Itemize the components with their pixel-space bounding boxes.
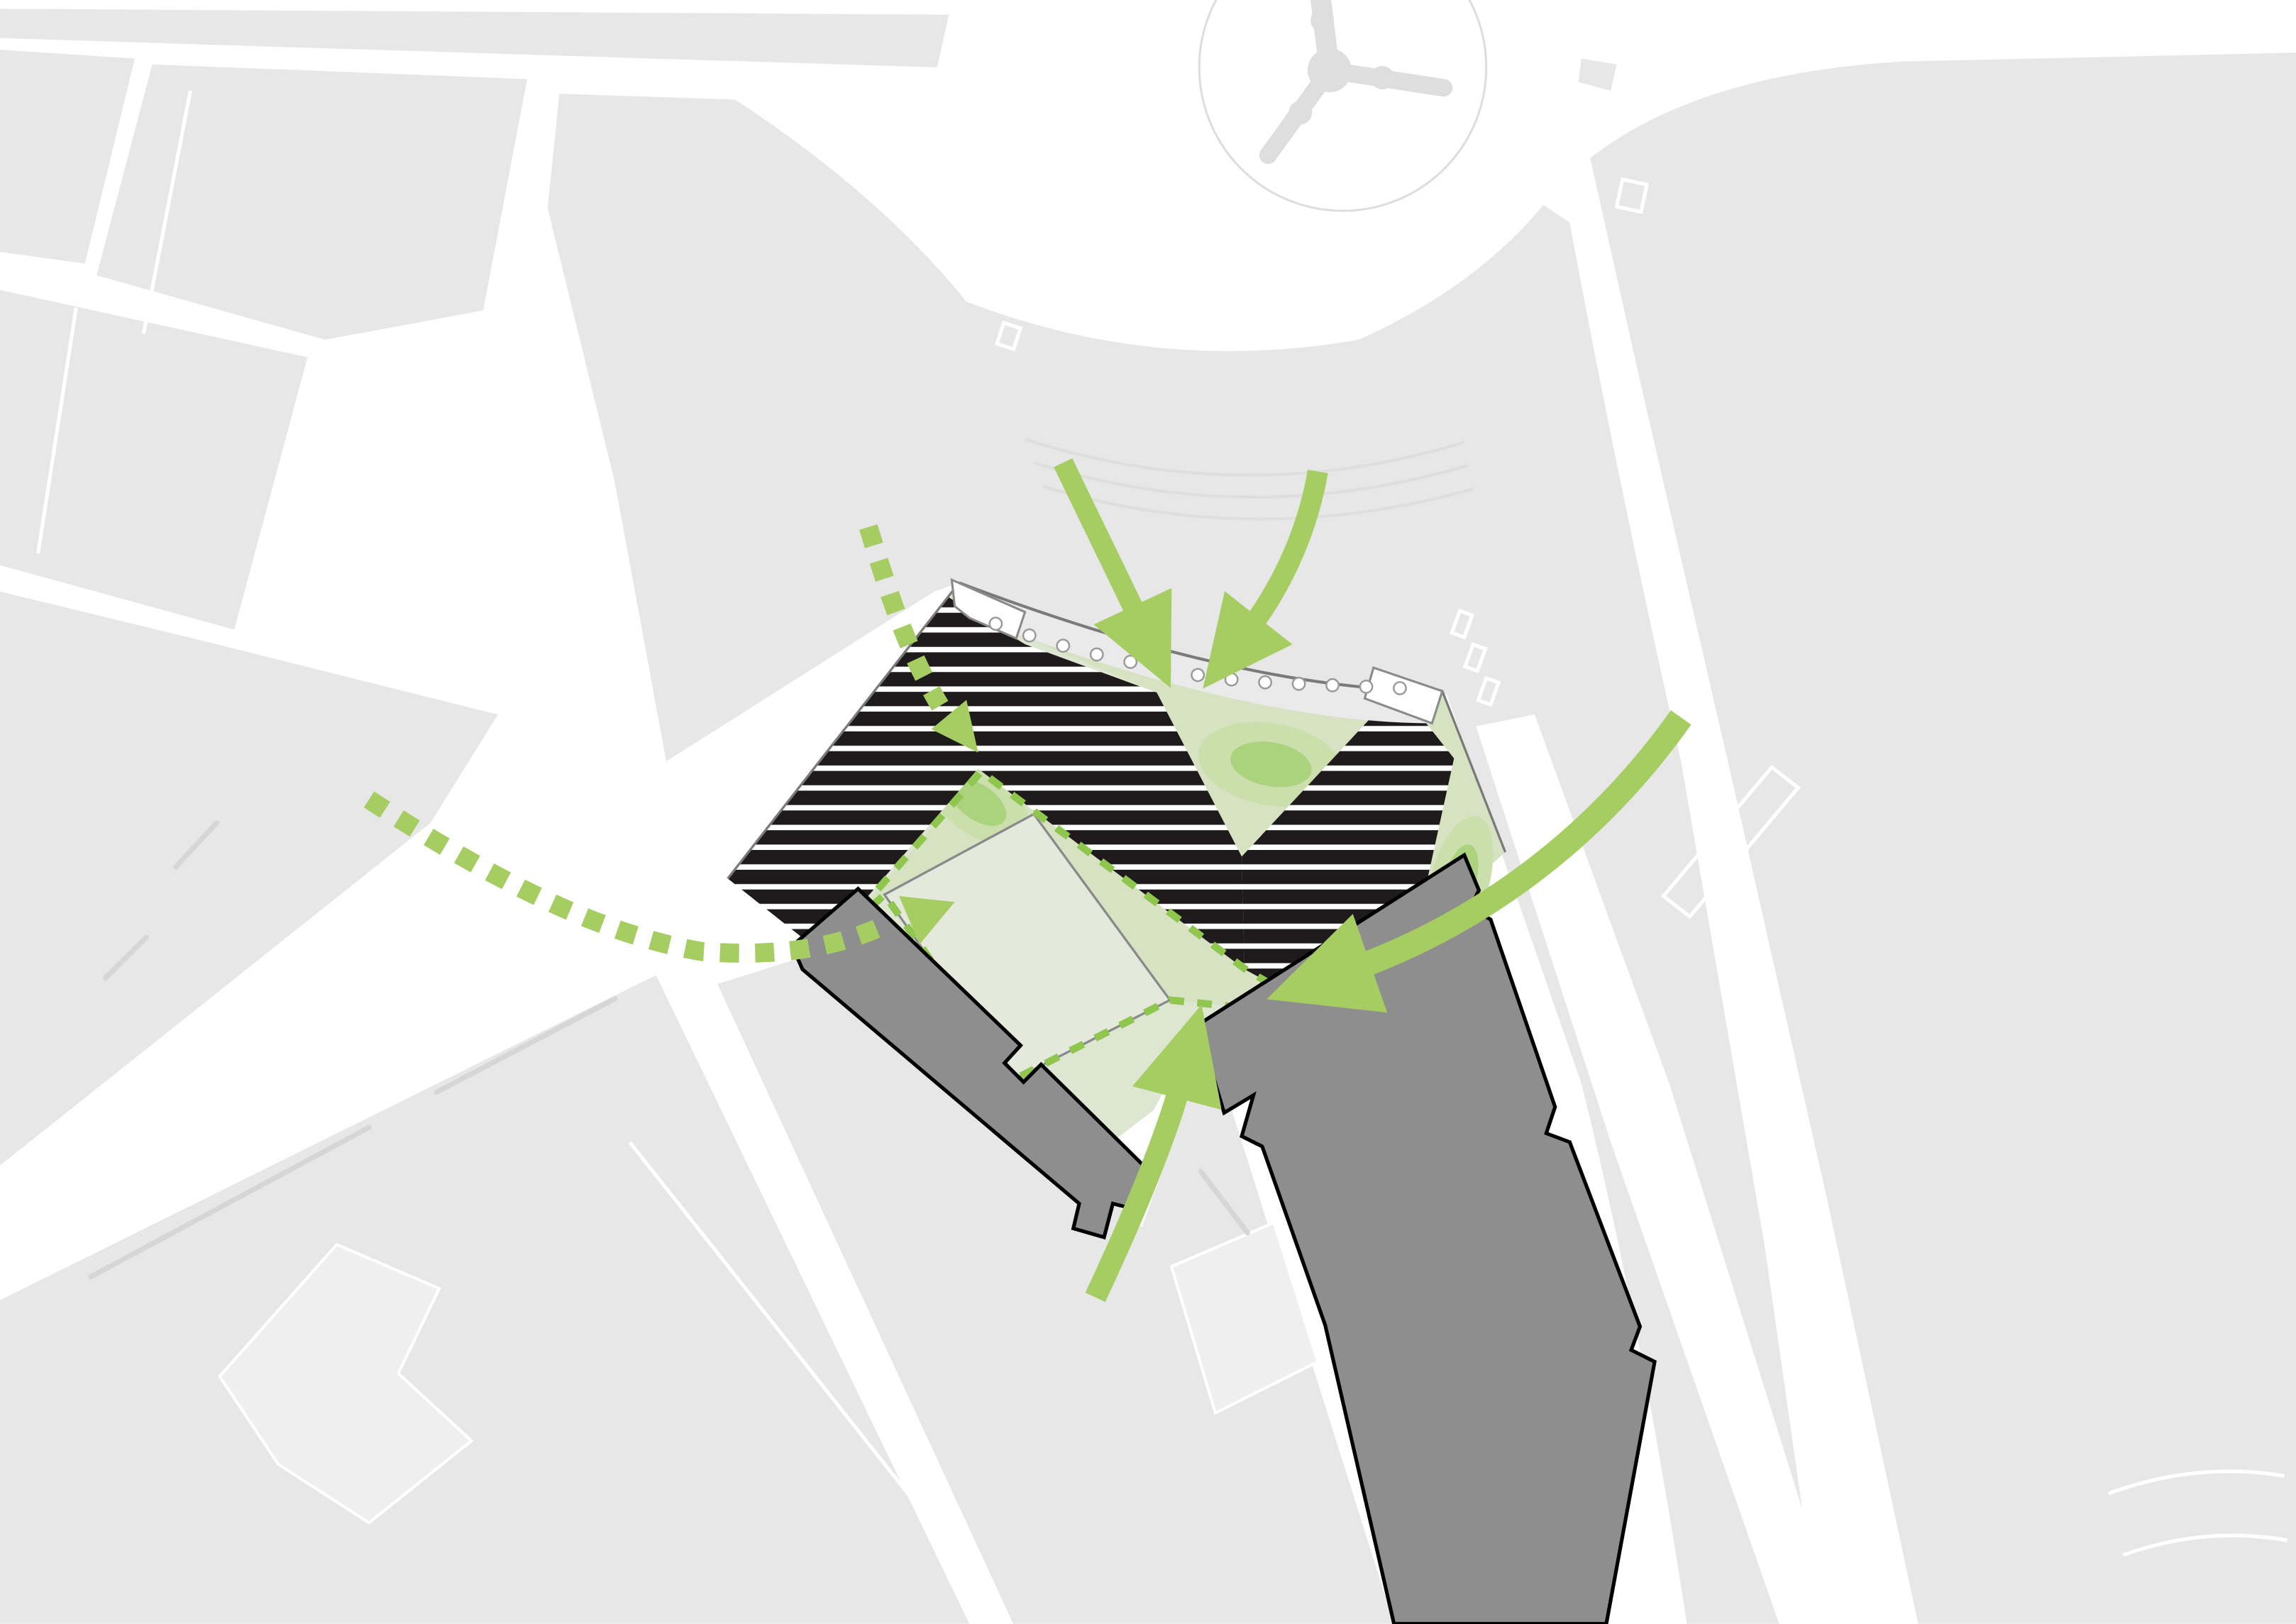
- site-plan-diagram: [0, 0, 2296, 1624]
